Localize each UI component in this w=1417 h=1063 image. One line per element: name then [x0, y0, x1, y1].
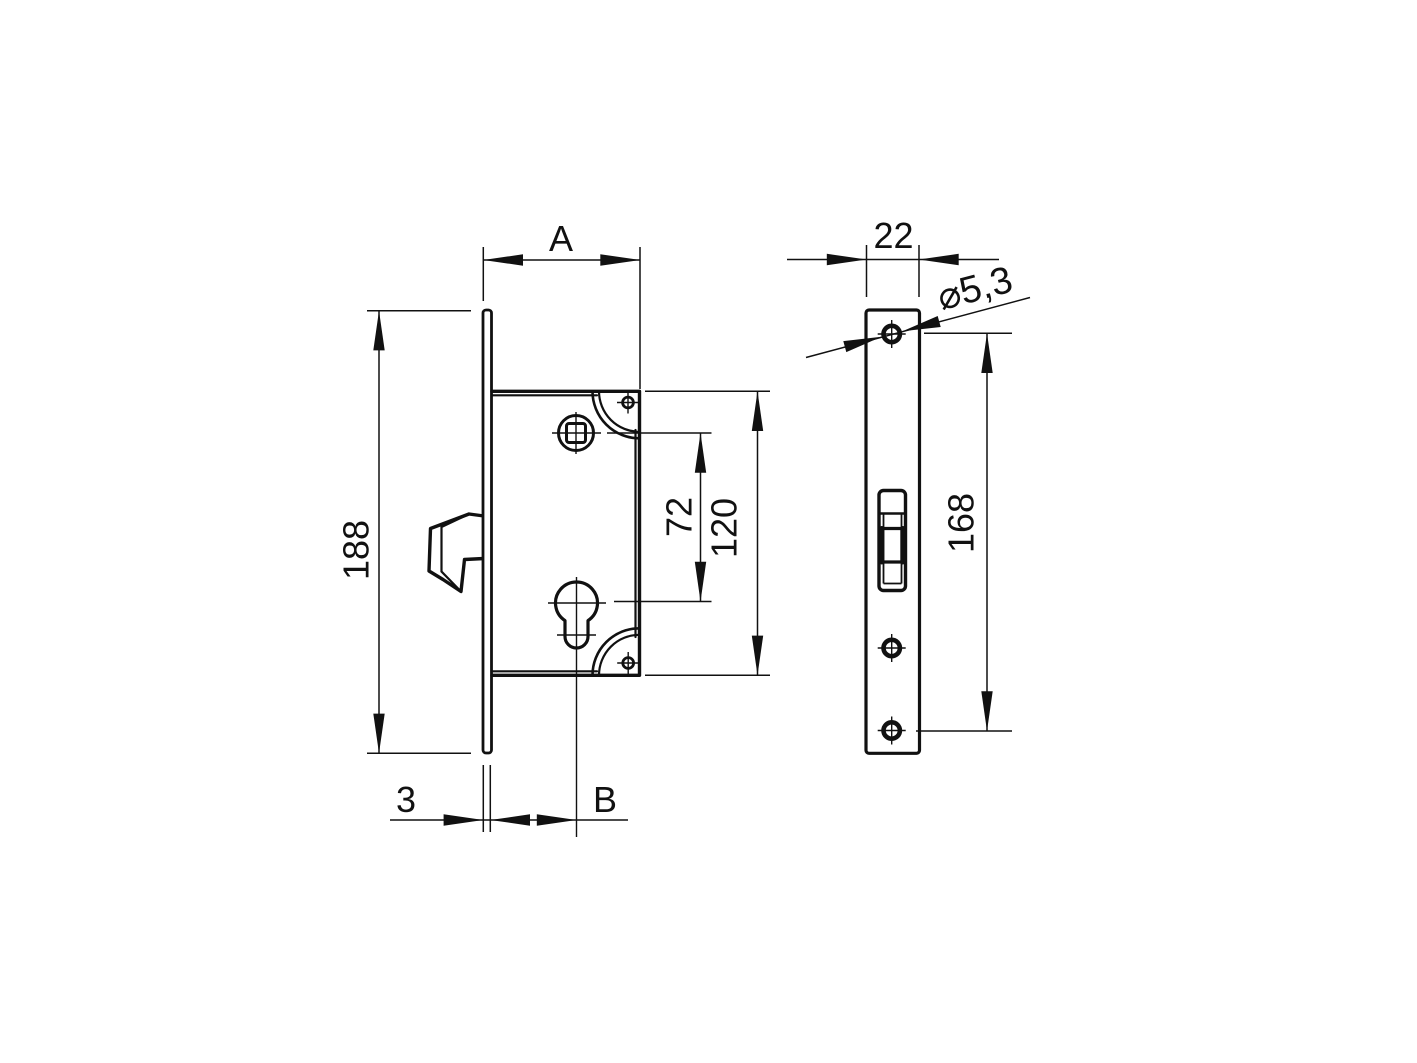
corner-tab-bottom — [593, 628, 640, 675]
dim-b-arrow-right — [537, 814, 577, 825]
corner-tab-top — [593, 391, 640, 438]
dim-168-arrow-top — [981, 333, 992, 373]
dim-188-arrow-bottom — [373, 714, 384, 754]
dim-22-arrow-left — [827, 254, 867, 265]
side-view-group: 22 ⌀5,3 168 — [787, 215, 1030, 753]
hook-bolt-inner-edges — [442, 514, 470, 590]
dim-188: 188 — [336, 311, 472, 754]
dim-a-arrow-right — [600, 254, 640, 265]
dim-120-text: 120 — [704, 498, 745, 558]
dim-22-arrow-right — [919, 254, 959, 265]
lock-technical-drawing: A 188 72 — [0, 0, 1417, 1063]
dim-3-and-b: 3 B — [390, 765, 628, 832]
front-view-group: A 188 72 — [336, 218, 771, 837]
dim-120-arrow-bottom — [752, 636, 763, 676]
dim-168: 168 — [916, 333, 1012, 731]
corner-screw-bottom-crosshair — [617, 652, 639, 674]
faceplate-front — [483, 310, 492, 753]
dim-3-text: 3 — [396, 779, 416, 820]
dim-120-arrow-top — [752, 391, 763, 431]
dim-a-text: A — [549, 218, 573, 259]
dim-diameter-text: ⌀5,3 — [933, 259, 1017, 319]
corner-tab-top-inner-arc — [599, 391, 640, 432]
dim-188-arrow-top — [373, 311, 384, 351]
technical-drawing-page: A 188 72 — [0, 0, 1417, 1063]
hook-bolt — [429, 514, 484, 592]
dim-168-text: 168 — [941, 493, 982, 553]
dim-72-arrow-bottom — [695, 562, 706, 602]
dim-b-arrow-left — [490, 814, 530, 825]
dim-72: 72 — [607, 433, 712, 602]
dim-72-arrow-top — [695, 433, 706, 473]
dim-188-text: 188 — [336, 520, 377, 580]
dim-3-arrow-left — [444, 814, 484, 825]
corner-screw-top-crosshair — [617, 392, 640, 414]
dim-22-text: 22 — [873, 215, 913, 256]
dim-72-text: 72 — [659, 497, 700, 537]
dim-b-text: B — [593, 779, 617, 820]
dim-a-arrow-left — [483, 254, 523, 265]
hook-bolt-slot — [879, 491, 906, 591]
spindle-follower — [552, 412, 601, 454]
dim-168-arrow-bottom — [981, 691, 992, 731]
dim-a: A — [483, 218, 640, 389]
follower-crosshair — [552, 412, 601, 454]
corner-tab-bottom-inner-arc — [599, 635, 640, 676]
